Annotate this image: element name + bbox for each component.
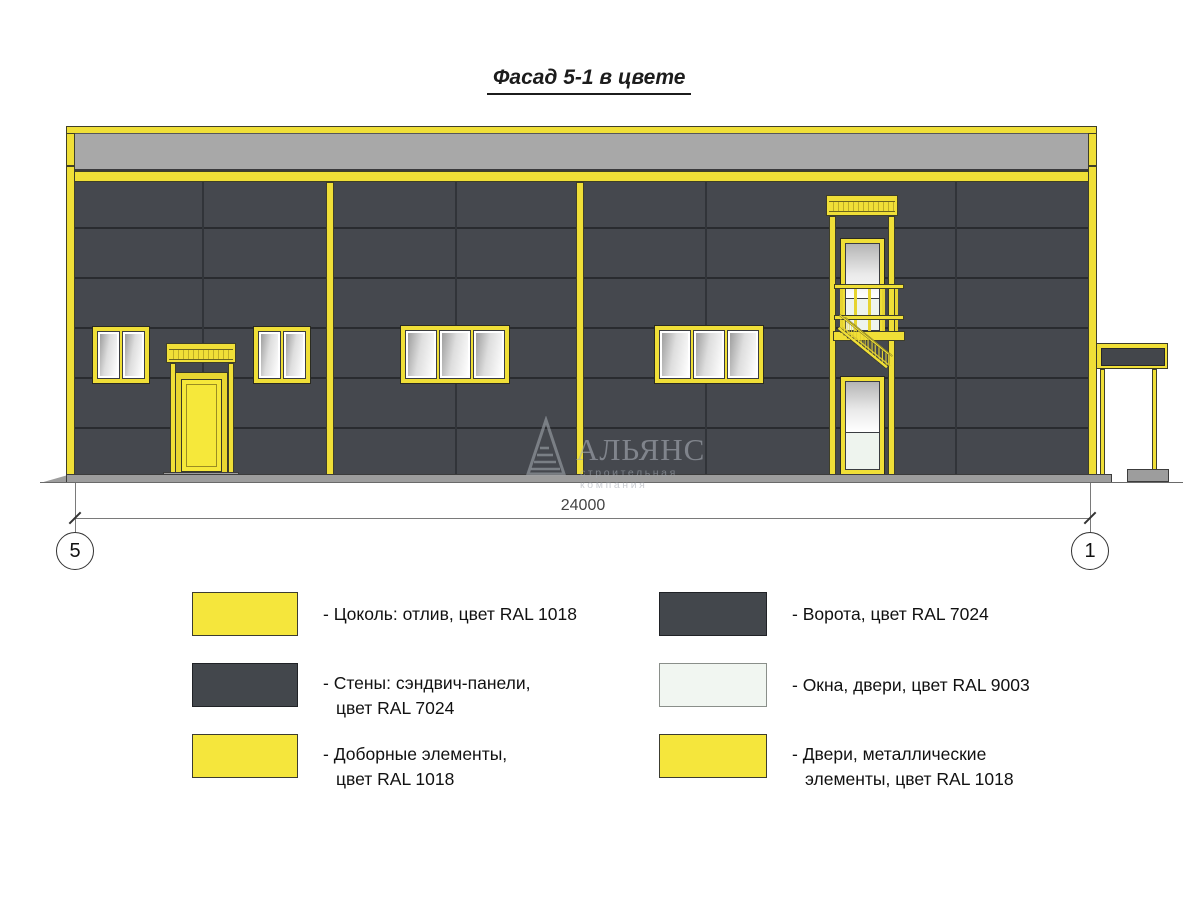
legend-swatch-trim bbox=[192, 734, 298, 778]
entrance-door bbox=[175, 372, 228, 477]
corner-joint bbox=[66, 165, 75, 167]
side-canopy bbox=[1096, 343, 1168, 369]
facade-drawing-sheet: Фасад 5-1 в цвете bbox=[0, 0, 1200, 900]
legend-line: - Доборные элементы, bbox=[323, 744, 507, 764]
window-pane bbox=[283, 331, 306, 379]
ground-line bbox=[40, 482, 1183, 483]
drawing-title: Фасад 5-1 в цвете bbox=[487, 66, 691, 95]
window-pane bbox=[659, 330, 691, 379]
dimension-label: 24000 bbox=[540, 497, 626, 515]
window-pane bbox=[97, 331, 120, 379]
legend-label-doors: - Двери, металлические элементы, цвет RA… bbox=[792, 742, 1014, 792]
window-pane bbox=[122, 331, 145, 379]
window-2 bbox=[253, 326, 311, 384]
window-pane bbox=[693, 330, 725, 379]
side-canopy-post bbox=[1152, 369, 1157, 477]
legend-label-gates: - Ворота, цвет RAL 7024 bbox=[792, 602, 989, 627]
legend-line: - Цоколь: отлив, цвет RAL 1018 bbox=[323, 604, 577, 624]
grid-marker-5: 5 bbox=[56, 532, 94, 570]
legend-swatch-walls bbox=[192, 663, 298, 707]
legend-label-windows: - Окна, двери, цвет RAL 9003 bbox=[792, 673, 1030, 698]
window-4 bbox=[654, 325, 764, 384]
legend-line: - Ворота, цвет RAL 7024 bbox=[792, 604, 989, 624]
fascia-band bbox=[74, 171, 1089, 182]
window-pane bbox=[727, 330, 759, 379]
corner-joint bbox=[1088, 165, 1097, 167]
legend-label-walls: - Стены: сэндвич-панели, цвет RAL 7024 bbox=[323, 671, 531, 721]
legend-line: - Окна, двери, цвет RAL 9003 bbox=[792, 675, 1030, 695]
stair-tower-canopy bbox=[826, 195, 898, 216]
legend-swatch-doors bbox=[659, 734, 767, 778]
legend-line: цвет RAL 1018 bbox=[323, 767, 507, 792]
legend-line: цвет RAL 7024 bbox=[323, 696, 531, 721]
window-pane bbox=[258, 331, 281, 379]
legend-label-trim: - Доборные элементы, цвет RAL 1018 bbox=[323, 742, 507, 792]
window-pane bbox=[439, 330, 471, 379]
legend-swatch-gates bbox=[659, 592, 767, 636]
side-canopy-post bbox=[1100, 369, 1105, 477]
legend-swatch-plinth bbox=[192, 592, 298, 636]
legend-line: - Стены: сэндвич-панели, bbox=[323, 673, 531, 693]
legend-label-plinth: - Цоколь: отлив, цвет RAL 1018 bbox=[323, 602, 577, 627]
window-pane bbox=[405, 330, 437, 379]
window-pane bbox=[473, 330, 505, 379]
grid-marker-1: 1 bbox=[1071, 532, 1109, 570]
staircase bbox=[820, 268, 1120, 483]
foundation-block bbox=[1127, 469, 1169, 482]
door-leaf bbox=[181, 379, 222, 472]
parapet-band bbox=[74, 133, 1089, 171]
legend-swatch-windows bbox=[659, 663, 767, 707]
grid-marker-label: 1 bbox=[1084, 540, 1095, 563]
legend-line: элементы, цвет RAL 1018 bbox=[792, 767, 1014, 792]
corner-strip-left bbox=[66, 133, 75, 478]
entrance-canopy bbox=[166, 343, 236, 363]
pilaster-strip bbox=[576, 182, 584, 478]
legend-line: - Двери, металлические bbox=[792, 744, 986, 764]
canopy-post bbox=[228, 363, 234, 477]
pilaster-strip bbox=[326, 182, 334, 478]
grid-marker-label: 5 bbox=[69, 540, 80, 563]
dimension-line bbox=[75, 518, 1091, 519]
window-1 bbox=[92, 326, 150, 384]
window-3 bbox=[400, 325, 510, 384]
